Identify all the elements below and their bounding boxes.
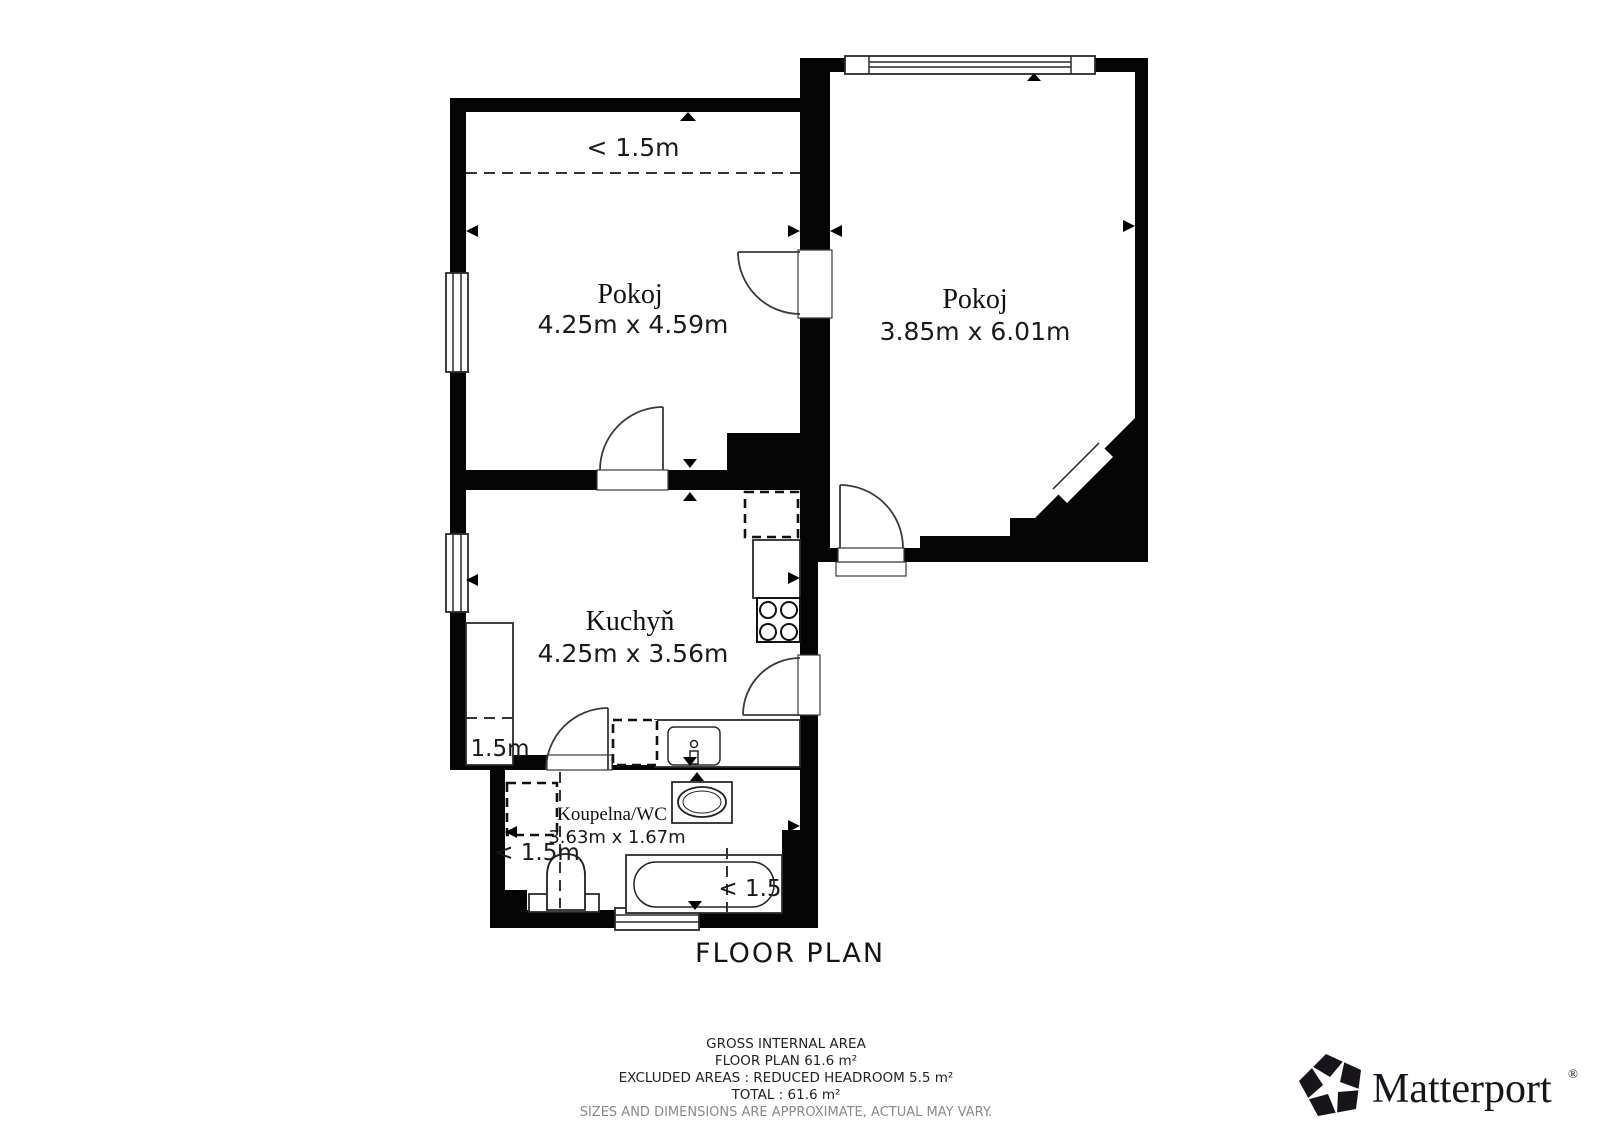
wall-segment <box>668 470 727 490</box>
footer-floor-plan-area: FLOOR PLAN 61.6 m² <box>715 1053 857 1069</box>
headroom-label-room1: < 1.5m <box>586 133 679 162</box>
arrow-up-icon <box>690 772 704 781</box>
footer-total: TOTAL : 61.6 m² <box>731 1087 841 1103</box>
registered-mark: ® <box>1568 1066 1578 1081</box>
arrow-up-icon <box>680 112 696 121</box>
wall-segment <box>727 433 806 490</box>
door-opening-room2-bottom <box>838 548 904 562</box>
kitchen-dashed-box <box>613 720 657 765</box>
stove-icon <box>757 598 800 642</box>
arrow-right-icon <box>1123 220 1135 232</box>
room1-dims: 4.25m x 4.59m <box>538 310 729 339</box>
kitchen-name: Kuchyň <box>586 606 675 637</box>
footer: GROSS INTERNAL AREA FLOOR PLAN 61.6 m² E… <box>580 1036 993 1120</box>
room2-dims: 3.85m x 6.01m <box>880 317 1071 346</box>
window-kitchen-left <box>446 534 468 612</box>
wall-segment <box>450 112 466 275</box>
window-room1-left <box>446 273 468 372</box>
door-opening-kitchen-east <box>798 655 820 715</box>
door-arc <box>743 658 800 715</box>
door-arc <box>840 485 903 548</box>
wall-segment <box>450 98 806 112</box>
window-room2-top <box>845 56 1095 74</box>
wall-segment <box>800 755 818 830</box>
kitchen-counter <box>753 540 800 598</box>
fridge-dashed-box <box>745 492 798 537</box>
footer-disclaimer: SIZES AND DIMENSIONS ARE APPROXIMATE, AC… <box>580 1105 993 1120</box>
floor-plan-canvas: < 1.5m Pokoj 4.25m x 4.59m Pokoj 3.85m x… <box>0 0 1600 1132</box>
arrow-left-icon <box>830 225 842 237</box>
wall-segment <box>800 318 830 490</box>
room1-name: Pokoj <box>597 279 662 310</box>
footer-gross-area: GROSS INTERNAL AREA <box>706 1036 866 1052</box>
wall-segment <box>1010 518 1148 536</box>
wall-segment <box>800 490 830 562</box>
arrow-left-icon <box>466 225 478 237</box>
wall-segment <box>904 548 1148 562</box>
arrow-up-icon <box>683 492 697 501</box>
wall-segment <box>450 610 466 770</box>
wall-segment <box>800 58 830 252</box>
wall-segment <box>800 562 818 655</box>
page-title: FLOOR PLAN <box>695 938 885 969</box>
matterport-wordmark: Matterport <box>1372 1066 1552 1112</box>
footer-excluded-areas: EXCLUDED AREAS : REDUCED HEADROOM 5.5 m² <box>619 1070 954 1086</box>
bathroom-name: Koupelna/WC <box>557 804 667 825</box>
kitchen-dims: 4.25m x 3.56m <box>538 639 729 668</box>
wall-segment <box>920 536 1148 548</box>
arrow-down-icon <box>683 459 697 468</box>
door-threshold-room2 <box>836 562 906 576</box>
matterport-logo-icon <box>1299 1051 1370 1122</box>
wall-segment <box>806 58 845 72</box>
headroom-label-tub: < 1.5 <box>718 876 781 902</box>
headroom-label-bathroom: < 1.5m <box>494 840 580 866</box>
door-arc <box>600 407 663 470</box>
door-arc <box>738 252 800 314</box>
room2-name: Pokoj <box>942 284 1007 315</box>
arrow-right-icon <box>788 225 800 237</box>
bathroom-sink-icon <box>672 782 732 823</box>
floor-plan-page: < 1.5m Pokoj 4.25m x 4.59m Pokoj 3.85m x… <box>0 0 1600 1132</box>
wall-segment <box>450 470 597 490</box>
kitchen-sink-icon <box>655 720 800 767</box>
wall-segment <box>830 548 838 562</box>
door-opening-room1-room2 <box>798 250 832 318</box>
headroom-label-kitchen: 1.5m <box>471 736 530 762</box>
wall-segment <box>450 370 466 536</box>
wall-segment <box>800 715 818 755</box>
door-opening-room1-kitchen <box>597 470 668 490</box>
door-opening-kitchen-bathroom <box>547 755 612 770</box>
matterport-branding: Matterport ® <box>1299 1051 1578 1122</box>
